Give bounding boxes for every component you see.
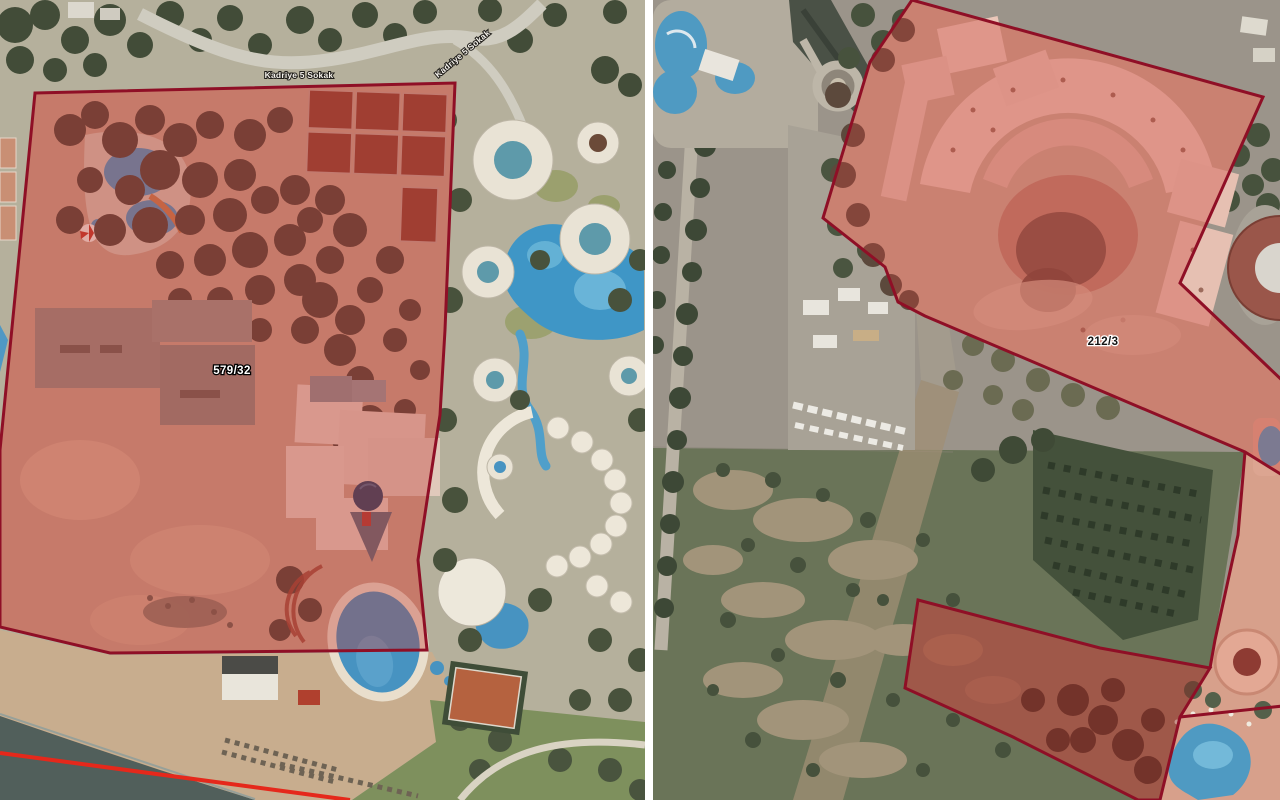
right-satellite-map[interactable]: 212/3 — [653, 0, 1280, 800]
map-divider — [645, 0, 653, 800]
red-roof-building — [298, 690, 320, 705]
bottom-tennis-court — [442, 661, 528, 735]
satellite-comparison-view: Kadriye 5 Sokak Kadriye 5 Sokak 579/32 — [0, 0, 1280, 800]
left-top-building — [68, 2, 94, 18]
left-map-panel: Kadriye 5 Sokak Kadriye 5 Sokak 579/32 — [0, 0, 645, 800]
left-edge-apartments — [0, 138, 16, 240]
parcel-label-212-3: 212/3 — [1088, 336, 1119, 348]
street-label-kadriye-5-sokak: Kadriye 5 Sokak — [265, 70, 334, 80]
left-satellite-map[interactable]: Kadriye 5 Sokak Kadriye 5 Sokak 579/32 — [0, 0, 645, 800]
parcel-label-579-32: 579/32 — [213, 365, 251, 377]
left-top-building-2 — [100, 8, 120, 20]
right-map-panel: 212/3 — [653, 0, 1280, 800]
